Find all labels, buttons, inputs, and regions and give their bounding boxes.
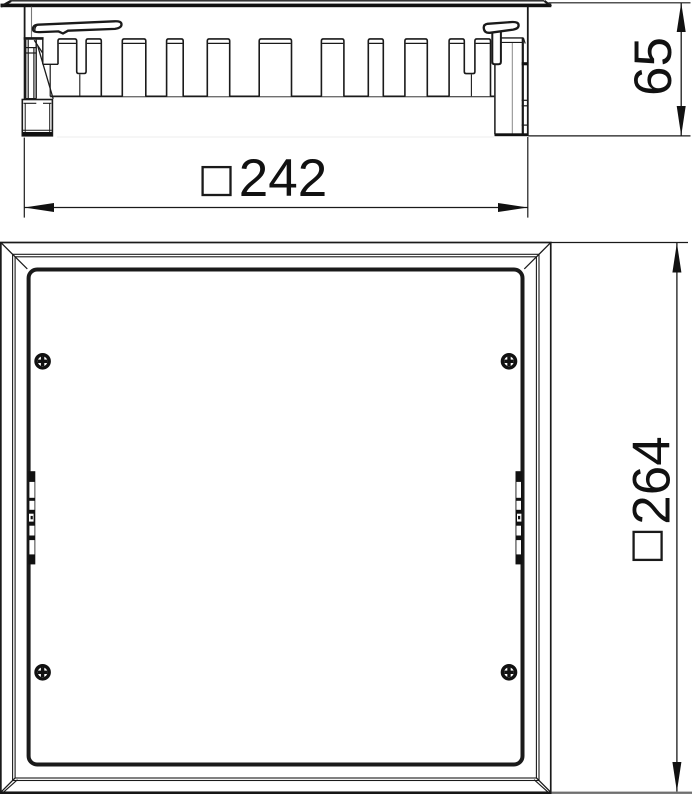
svg-text:242: 242	[239, 149, 327, 208]
svg-text:264: 264	[623, 436, 682, 524]
svg-text:65: 65	[624, 37, 683, 96]
